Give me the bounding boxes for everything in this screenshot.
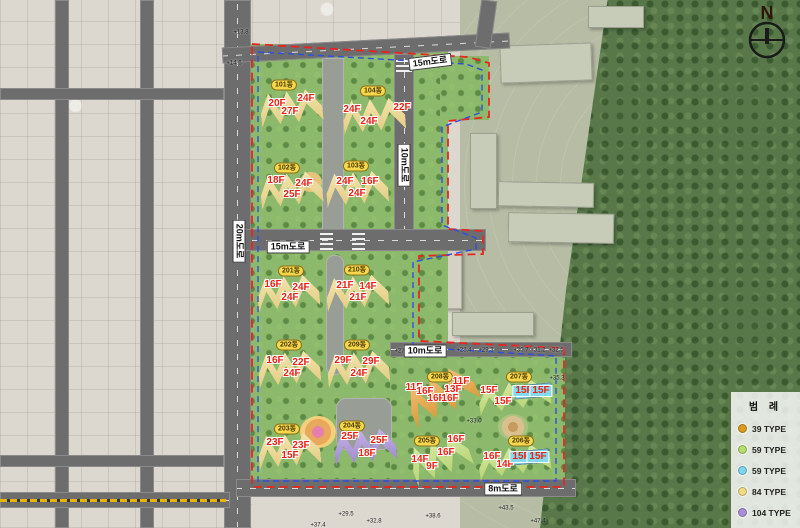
legend-item-label: 39 TYPE — [752, 424, 786, 434]
floor-label-102동-25F: 25F — [283, 190, 300, 200]
block-label-206동: 206동 — [508, 436, 534, 447]
compass-icon — [747, 20, 787, 60]
floor-label-103동-16F: 16F — [361, 177, 378, 187]
north-compass: N — [744, 4, 790, 56]
spot-elevation: +33.0 — [466, 419, 481, 426]
site-plan-map: 15m도로10m도로15m도로10m도로8m도로20m도로101동20F24F2… — [0, 0, 800, 528]
block-label-203동: 203동 — [274, 424, 300, 435]
floor-label-104동-24F: 24F — [360, 117, 377, 127]
floor-label-205동-16F: 16F — [437, 448, 454, 458]
block-label-207동: 207동 — [506, 372, 532, 383]
floor-label-210동-21F: 21F — [349, 293, 366, 303]
spot-elevation: +47.4 — [530, 519, 545, 526]
floor-label-209동-29F: 29F — [362, 357, 379, 367]
floor-label-202동-22F: 22F — [292, 358, 309, 368]
floor-label-202동-24F: 24F — [283, 369, 300, 379]
legend-color-dot — [738, 466, 747, 475]
floor-label-208동-16F: 16F — [441, 394, 458, 404]
spot-elevation: +30.7 — [513, 348, 528, 355]
legend-panel: 범 례 39 TYPE59 TYPE59 TYPE84 TYPE104 TYPE — [731, 392, 800, 528]
spot-elevation: +32.8 — [366, 519, 381, 526]
legend-title: 범 례 — [731, 398, 800, 413]
legend-color-dot — [738, 487, 747, 496]
spot-elevation: +32.6 — [548, 348, 563, 355]
floor-label-203동-23F: 23F — [266, 438, 283, 448]
floor-label-204동-25F: 25F — [341, 432, 358, 442]
spot-elevation: +29.3 — [478, 348, 493, 355]
floor-label-207동-15F: 15F — [480, 386, 497, 396]
spot-elevation: +38.6 — [425, 514, 440, 521]
floor-label-205동-16F: 16F — [447, 435, 464, 445]
legend-item-59-type: 59 TYPE — [731, 460, 800, 481]
floor-label-210동-14F: 14F — [359, 282, 376, 292]
floor-label-103동-24F: 24F — [336, 177, 353, 187]
legend-item-84-type: 84 TYPE — [731, 481, 800, 502]
spot-elevation: +13.8 — [233, 30, 248, 37]
road-label-15m도로: 15m도로 — [267, 241, 310, 254]
floor-label-209동-29F: 29F — [334, 356, 351, 366]
block-label-202동: 202동 — [276, 340, 302, 351]
block-label-208동: 208동 — [427, 372, 453, 383]
floor-label-207동-15F: 15F — [494, 397, 511, 407]
spot-elevation: +31.2 — [530, 348, 545, 355]
floor-label-102동-18F: 18F — [267, 176, 284, 186]
block-label-205동: 205동 — [414, 436, 440, 447]
block-label-210동: 210동 — [344, 265, 370, 276]
annotations-layer: 15m도로10m도로15m도로10m도로8m도로20m도로101동20F24F2… — [0, 0, 800, 528]
legend-item-label: 59 TYPE — [752, 445, 786, 455]
crosswalk-2 — [352, 230, 365, 250]
legend-item-39-type: 39 TYPE — [731, 418, 800, 439]
road-label-15m도로: 15m도로 — [408, 53, 452, 71]
block-label-201동: 201동 — [278, 266, 304, 277]
block-label-102동: 102동 — [274, 163, 300, 174]
floor-label-103동-24F: 24F — [348, 189, 365, 199]
legend-item-104-type: 104 TYPE — [731, 502, 800, 523]
floor-label-101동-27F: 27F — [281, 107, 298, 117]
block-label-104동: 104동 — [360, 86, 386, 97]
road-label-10m도로: 10m도로 — [398, 144, 411, 187]
legend-color-dot — [738, 508, 747, 517]
crosswalk-1 — [320, 230, 333, 250]
floor-label-205동-9F: 9F — [426, 462, 438, 472]
floor-label-206동-15F: 15F — [526, 451, 549, 463]
block-label-209동: 209동 — [344, 340, 370, 351]
legend-item-label: 59 TYPE — [752, 466, 786, 476]
floor-label-210동-21F: 21F — [336, 281, 353, 291]
road-label-20m도로: 20m도로 — [233, 220, 246, 263]
legend-color-dot — [738, 424, 747, 433]
floor-label-104동-22F: 22F — [393, 103, 410, 113]
floor-label-204동-18F: 18F — [358, 449, 375, 459]
floor-label-101동-24F: 24F — [297, 94, 314, 104]
legend-item-59-type: 59 TYPE — [731, 439, 800, 460]
floor-label-201동-24F: 24F — [281, 293, 298, 303]
floor-label-104동-24F: 24F — [343, 105, 360, 115]
spot-elevation: +37.4 — [310, 523, 325, 528]
floor-label-201동-16F: 16F — [264, 280, 281, 290]
spot-elevation: +14.6 — [226, 61, 241, 68]
block-label-103동: 103동 — [343, 161, 369, 172]
spot-elevation: +35.3 — [549, 376, 564, 383]
block-label-101동: 101동 — [271, 80, 297, 91]
legend-color-dot — [738, 445, 747, 454]
floor-label-209동-24F: 24F — [350, 369, 367, 379]
spot-elevation: +28.4 — [456, 348, 471, 355]
road-label-10m도로: 10m도로 — [404, 345, 447, 358]
floor-label-204동-25F: 25F — [370, 436, 387, 446]
road-label-8m도로: 8m도로 — [484, 483, 522, 496]
floor-label-207동-15F: 15F — [529, 385, 552, 397]
floor-label-102동-24F: 24F — [295, 179, 312, 189]
legend-item-label: 104 TYPE — [752, 508, 791, 518]
floor-label-202동-16F: 16F — [266, 356, 283, 366]
block-label-204동: 204동 — [339, 421, 365, 432]
spot-elevation: +29.5 — [338, 512, 353, 519]
spot-elevation: +43.5 — [498, 506, 513, 513]
legend-item-label: 84 TYPE — [752, 487, 786, 497]
floor-label-203동-15F: 15F — [281, 451, 298, 461]
